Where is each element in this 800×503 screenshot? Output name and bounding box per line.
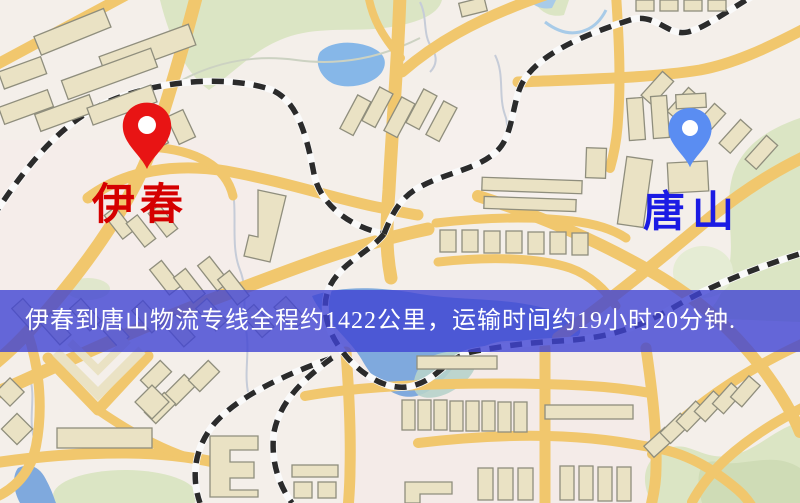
route-info-banner: 伊春到唐山物流专线全程约1422公里，运输时间约19小时20分钟. — [0, 290, 800, 352]
map-canvas[interactable] — [0, 0, 800, 503]
map-view[interactable]: 伊春到唐山物流专线全程约1422公里，运输时间约19小时20分钟. 伊春 唐山 — [0, 0, 800, 503]
destination-city-label: 唐山 — [643, 178, 741, 239]
origin-pin-icon[interactable] — [120, 99, 174, 169]
destination-pin-icon[interactable] — [666, 104, 714, 168]
origin-city-label: 伊春 — [92, 170, 188, 232]
route-info-text: 伊春到唐山物流专线全程约1422公里，运输时间约19小时20分钟. — [25, 308, 736, 334]
